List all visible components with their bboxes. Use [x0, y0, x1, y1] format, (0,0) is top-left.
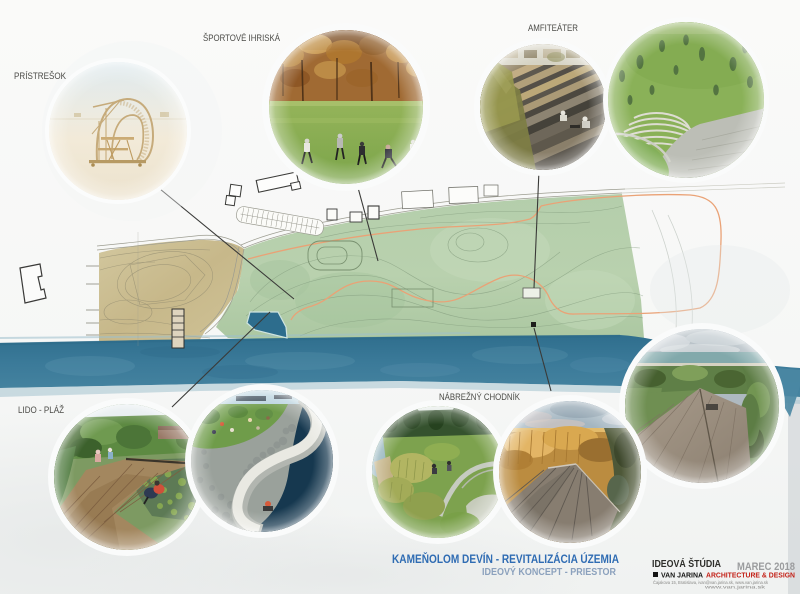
- svg-text:www.van.jarina.sk: www.van.jarina.sk: [705, 585, 766, 590]
- svg-text:MAREC 2018: MAREC 2018: [737, 561, 795, 573]
- svg-text:ŠPORTOVÉ IHRISKÁ: ŠPORTOVÉ IHRISKÁ: [203, 33, 281, 44]
- svg-text:IDEOVÁ ŠTÚDIA: IDEOVÁ ŠTÚDIA: [652, 558, 721, 570]
- svg-text:KAMEŇOLOM DEVÍN - REVITALIZÁCI: KAMEŇOLOM DEVÍN - REVITALIZÁCIA ÚZEMIA: [392, 553, 619, 566]
- svg-text:AMFITEÁTER: AMFITEÁTER: [528, 23, 578, 34]
- svg-text:VAN JARINA: VAN JARINA: [661, 573, 703, 580]
- svg-text:IDEOVÝ KONCEPT - PRIESTOR: IDEOVÝ KONCEPT - PRIESTOR: [482, 565, 617, 578]
- svg-text:LIDO - PLÁŽ: LIDO - PLÁŽ: [18, 405, 64, 416]
- svg-text:PRÍSTREŠOK: PRÍSTREŠOK: [14, 71, 67, 82]
- svg-text:ARCHITECTURE & DESIGN: ARCHITECTURE & DESIGN: [706, 573, 795, 580]
- svg-text:NÁBREŽNÝ CHODNÍK: NÁBREŽNÝ CHODNÍK: [439, 392, 521, 403]
